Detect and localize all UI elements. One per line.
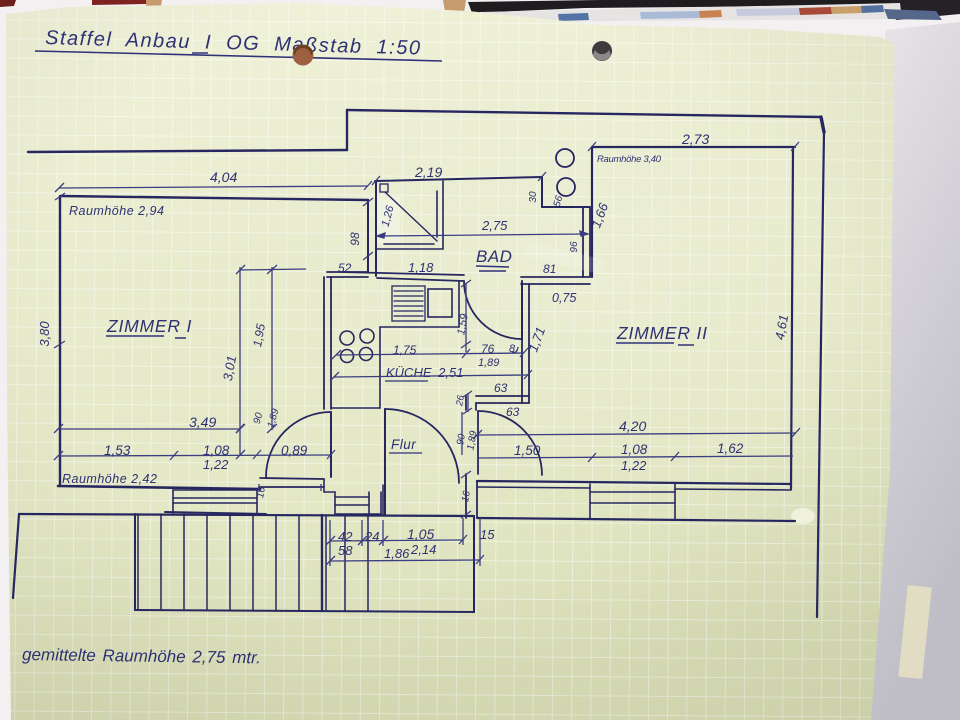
svg-text:BAD: BAD <box>476 247 512 266</box>
svg-text:gemittelte Raumhöhe 2,75 mtr.: gemittelte Raumhöhe 2,75 mtr. <box>22 645 261 667</box>
svg-text:3,80: 3,80 <box>37 321 52 347</box>
svg-text:1,89: 1,89 <box>478 357 499 369</box>
svg-text:1,75: 1,75 <box>393 343 417 357</box>
svg-text:3,49: 3,49 <box>189 414 216 430</box>
svg-text:8: 8 <box>509 343 516 355</box>
svg-text:1,86: 1,86 <box>384 546 410 561</box>
svg-text:63: 63 <box>506 405 520 419</box>
svg-text:ZIMMER II: ZIMMER II <box>616 323 708 343</box>
svg-text:2,19: 2,19 <box>414 164 442 180</box>
svg-text:30: 30 <box>528 191 539 203</box>
svg-text:1,62: 1,62 <box>717 441 744 456</box>
svg-text:KÜCHE 2,51: KÜCHE 2,51 <box>386 365 463 380</box>
svg-text:1,08: 1,08 <box>203 443 230 458</box>
svg-text:4,20: 4,20 <box>619 418 646 434</box>
svg-text:2,73: 2,73 <box>681 131 709 147</box>
svg-text:Raumhöhe 3,40: Raumhöhe 3,40 <box>597 154 662 165</box>
svg-text:1,18: 1,18 <box>408 260 434 275</box>
svg-text:42: 42 <box>338 529 353 544</box>
svg-text:0,75: 0,75 <box>552 291 576 305</box>
svg-text:1,22: 1,22 <box>203 457 229 472</box>
svg-text:96: 96 <box>569 241 580 253</box>
svg-text:4,04: 4,04 <box>210 169 237 185</box>
svg-text:1,53: 1,53 <box>104 443 131 458</box>
svg-text:98: 98 <box>348 232 362 246</box>
svg-text:76: 76 <box>481 342 495 356</box>
svg-text:0,89: 0,89 <box>281 443 308 458</box>
svg-text:ZIMMER I: ZIMMER I <box>106 316 192 336</box>
svg-text:1,50: 1,50 <box>514 443 541 458</box>
svg-text:81: 81 <box>543 262 556 276</box>
svg-text:15: 15 <box>480 527 495 542</box>
svg-text:Flur: Flur <box>391 437 416 452</box>
svg-text:52: 52 <box>338 261 352 275</box>
svg-text:2,14: 2,14 <box>410 542 436 557</box>
svg-text:Raumhöhe 2,42: Raumhöhe 2,42 <box>62 472 157 486</box>
svg-text:2,75: 2,75 <box>481 218 508 233</box>
svg-text:1,08: 1,08 <box>621 442 648 457</box>
svg-text:1,22: 1,22 <box>621 458 647 473</box>
svg-text:1,05: 1,05 <box>407 526 434 542</box>
svg-text:63: 63 <box>494 381 508 395</box>
svg-text:Raumhöhe 2,94: Raumhöhe 2,94 <box>69 204 164 218</box>
svg-text:58: 58 <box>338 543 353 558</box>
svg-text:24: 24 <box>364 529 379 544</box>
